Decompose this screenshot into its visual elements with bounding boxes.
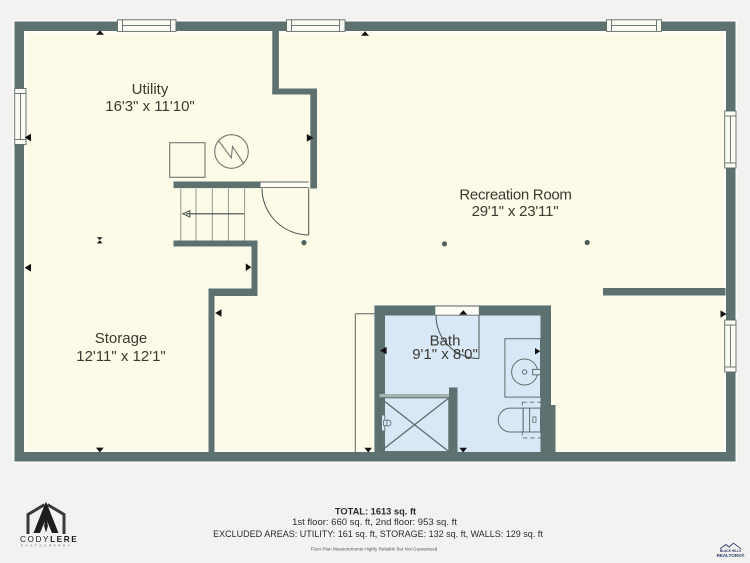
svg-text:CODYLERE: CODYLERE xyxy=(20,535,78,544)
svg-text:TOTAL: 1613 sq. ft: TOTAL: 1613 sq. ft xyxy=(335,506,416,516)
svg-text:1st floor: 660 sq. ft, 2nd flo: 1st floor: 660 sq. ft, 2nd floor: 953 sq… xyxy=(292,517,457,528)
svg-text:Storage: Storage xyxy=(95,330,148,347)
svg-text:Utility: Utility xyxy=(132,81,169,98)
svg-text:Floor Plan Measurements Highly: Floor Plan Measurements Highly Reliable … xyxy=(311,547,438,552)
svg-text:16'3" x 11'10": 16'3" x 11'10" xyxy=(105,98,195,115)
svg-text:12'11" x 12'1": 12'11" x 12'1" xyxy=(76,348,166,365)
svg-text:Recreation Room: Recreation Room xyxy=(459,187,571,204)
svg-text:REALTORS®: REALTORS® xyxy=(717,552,745,558)
svg-text:29'1" x 23'11": 29'1" x 23'11" xyxy=(472,203,559,220)
svg-text:EXCLUDED AREAS: UTILITY: 161 s: EXCLUDED AREAS: UTILITY: 161 sq. ft, STO… xyxy=(213,529,543,539)
svg-text:PHOTOGRAPHY: PHOTOGRAPHY xyxy=(21,544,72,548)
svg-text:9'1" x 8'0": 9'1" x 8'0" xyxy=(412,346,478,363)
